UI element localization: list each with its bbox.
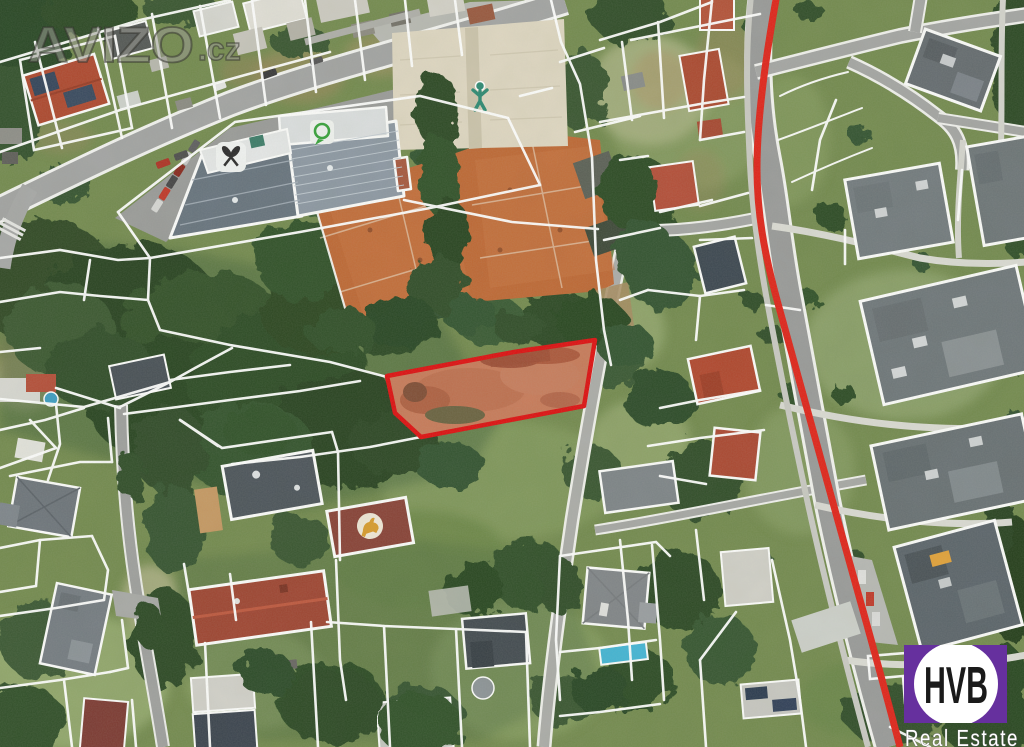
svg-text:.cz: .cz (198, 31, 241, 67)
svg-text:AVIZO: AVIZO (28, 17, 194, 73)
svg-text:Real Estate: Real Estate (905, 725, 1019, 747)
svg-text:HVB: HVB (924, 657, 988, 715)
